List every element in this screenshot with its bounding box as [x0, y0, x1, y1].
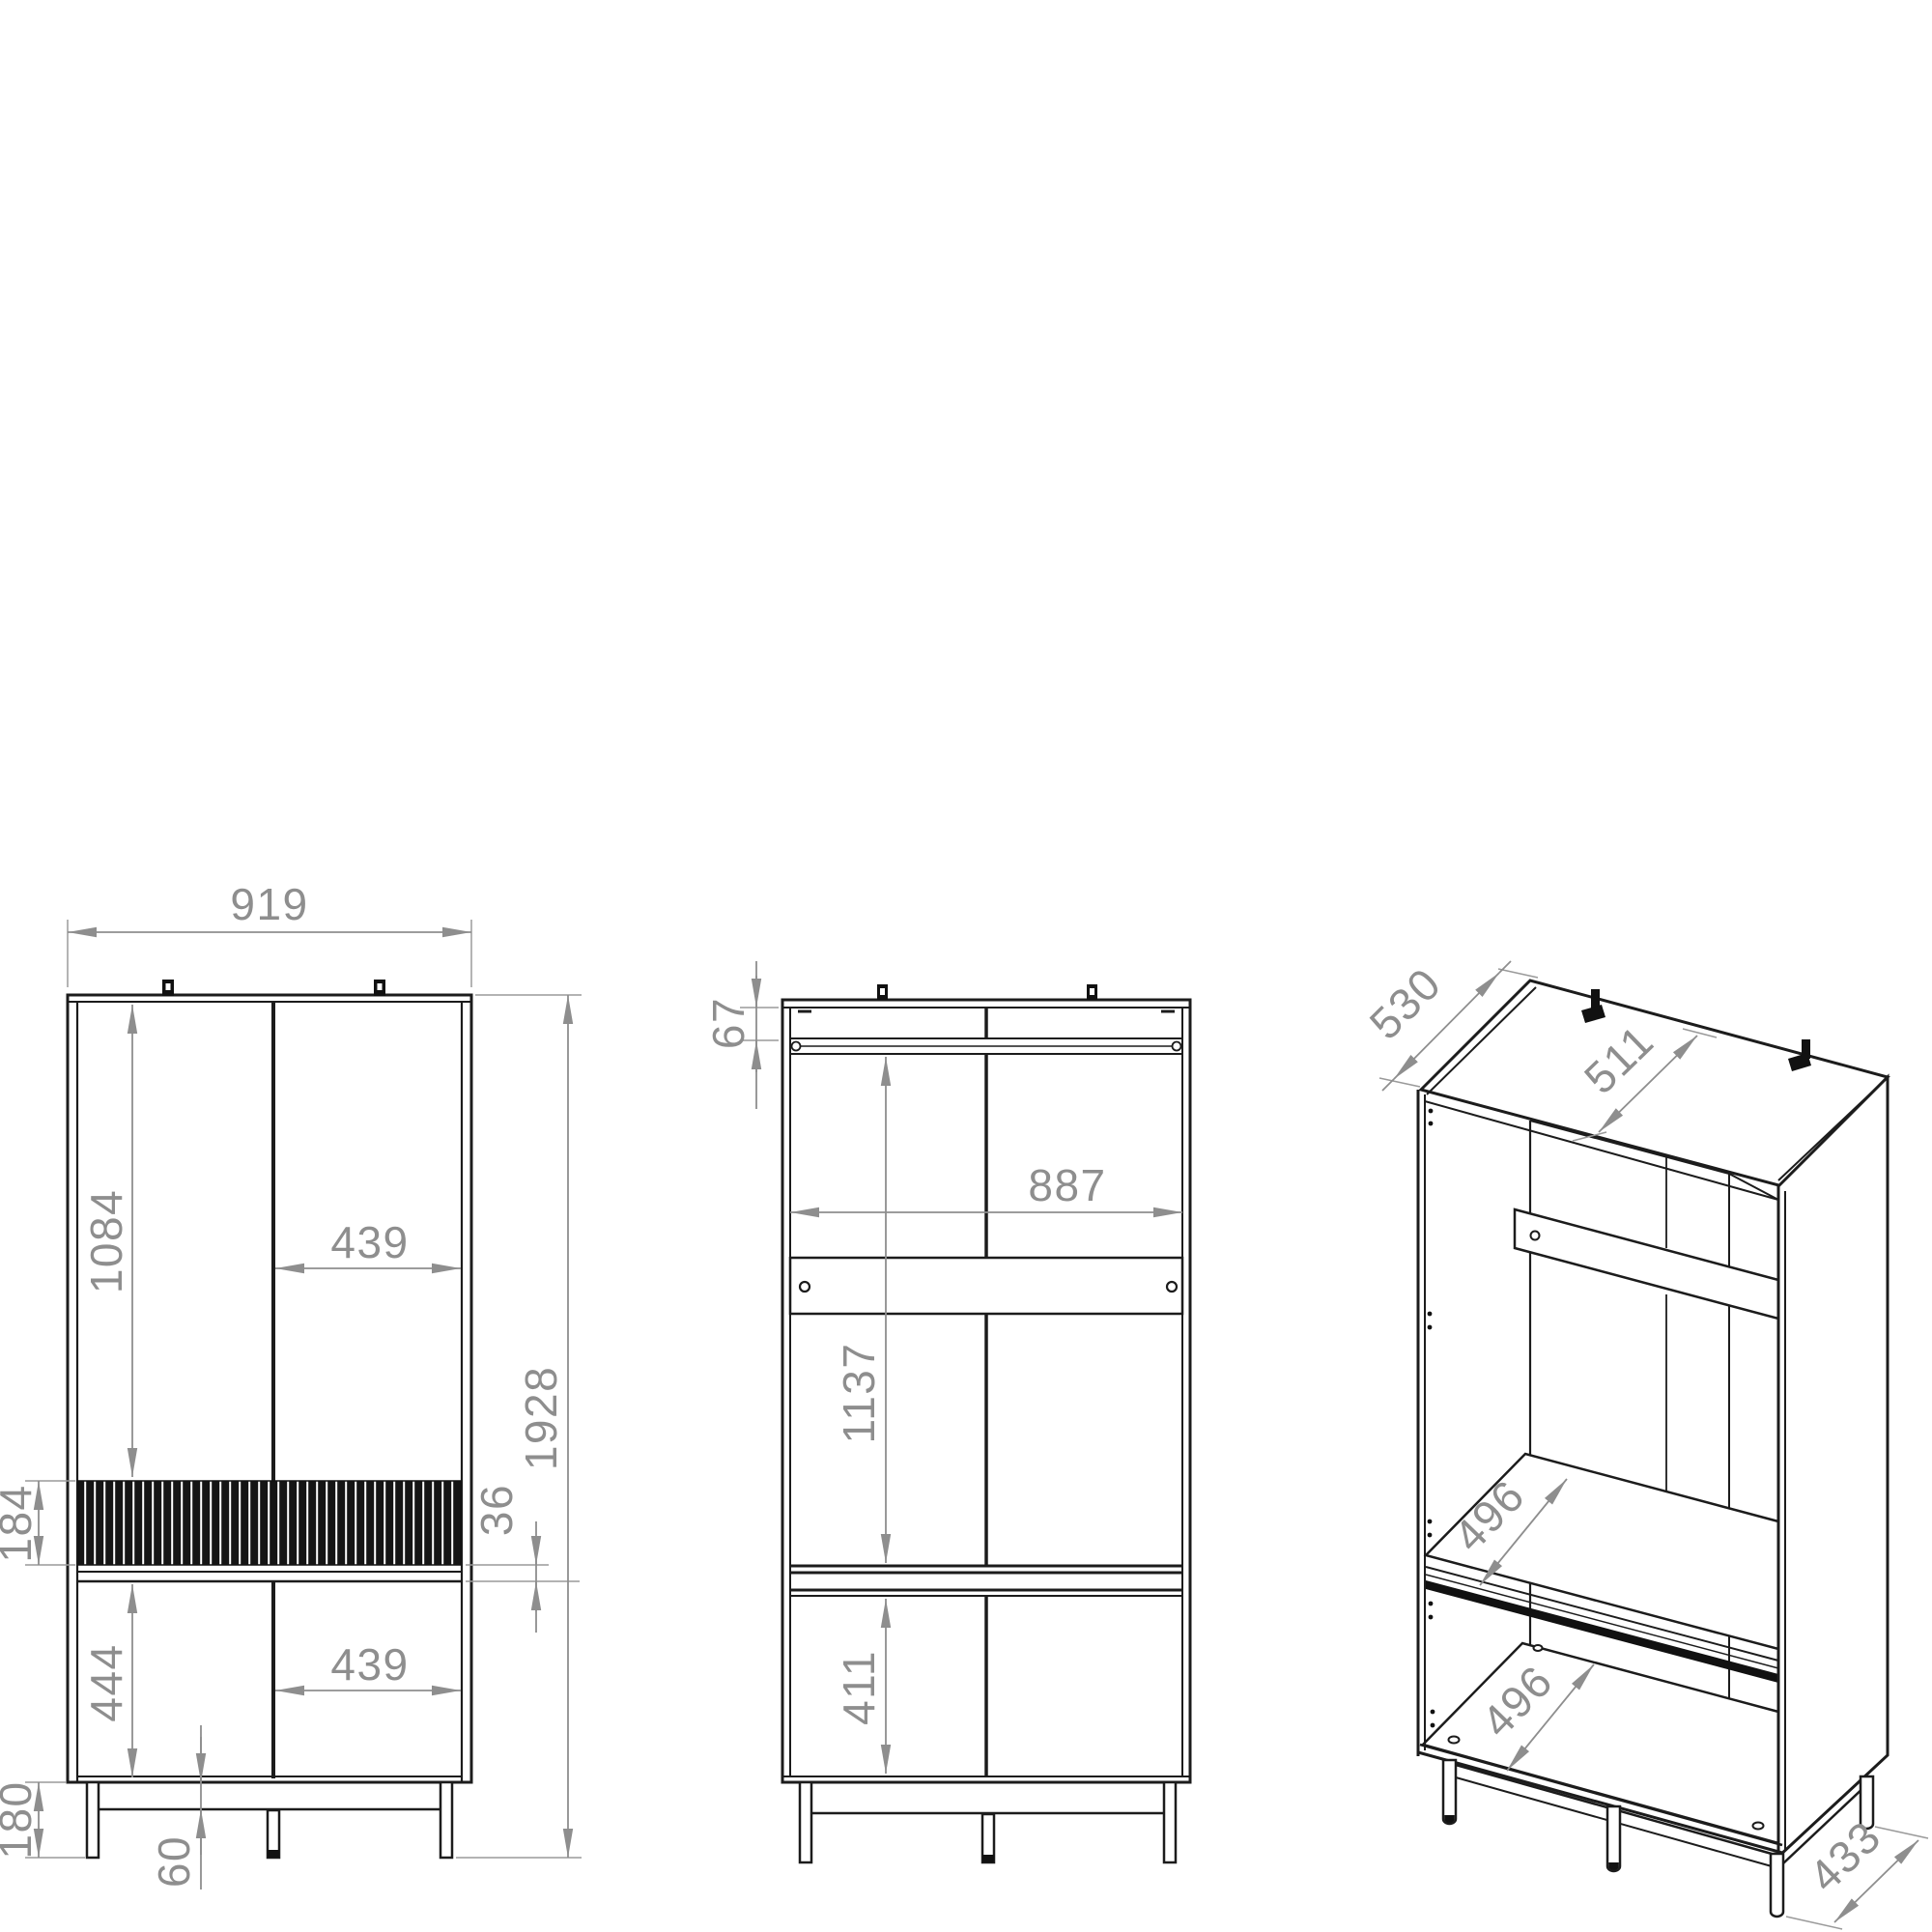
dim-label-base-rail-height: 60 [149, 1835, 199, 1888]
dim-label-upper-door-width: 439 [330, 1217, 409, 1267]
front-left-leg [1443, 1760, 1456, 1824]
front-right-leg [1771, 1854, 1783, 1917]
front-middle-leg [1607, 1806, 1620, 1871]
dim-label-upper-door-height: 1084 [81, 1189, 131, 1293]
dim-label-drawer-front-height: 184 [0, 1484, 41, 1562]
screw-hole [800, 1282, 810, 1292]
right-panel-outer-face [1778, 1077, 1888, 1857]
dim-label-interior-width: 887 [1028, 1160, 1106, 1210]
back-rail-panel [790, 1258, 1182, 1314]
screw-hole [1167, 1282, 1177, 1292]
dim-label-top-offset: 67 [703, 997, 753, 1049]
dim-label-lower-door-height: 444 [81, 1643, 131, 1721]
dim-label-leg-height: 180 [0, 1780, 41, 1859]
dim-label-upper-section-height: 1137 [834, 1343, 884, 1444]
fluted-drawer-front [78, 1481, 461, 1565]
dim-label-lower-door-width: 439 [330, 1639, 409, 1690]
screw-hole [1531, 1232, 1540, 1240]
screw-hole [1534, 1645, 1543, 1651]
dim-label-overall-width: 919 [230, 879, 308, 929]
dim-label-drawer-gap: 36 [471, 1484, 522, 1536]
screw-hole [1449, 1737, 1460, 1744]
dim-label-total-height: 1928 [516, 1366, 566, 1470]
screw-hole [1753, 1823, 1764, 1830]
technical-drawing-canvas: 919 1084 439 184 36 444 [0, 0, 1932, 1932]
dim-label-lower-section-height: 411 [834, 1650, 884, 1725]
